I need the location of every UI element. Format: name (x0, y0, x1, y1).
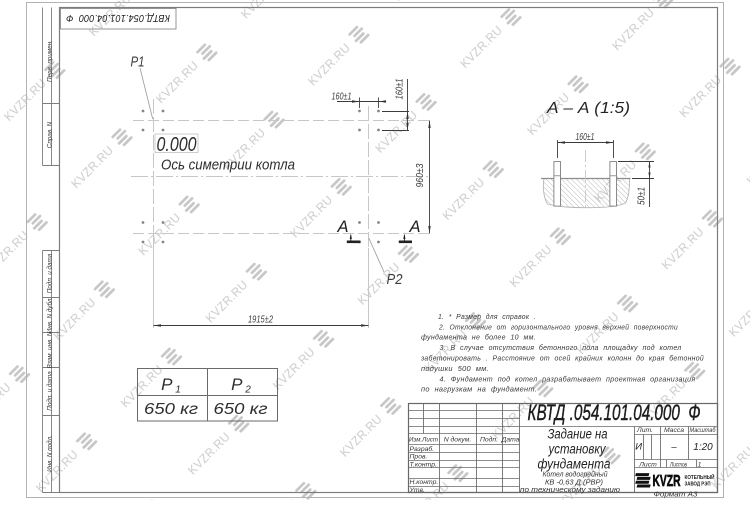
svg-text:Лит.: Лит. (636, 427, 653, 434)
svg-text:Р1: Р1 (131, 54, 145, 71)
svg-text:1:20: 1:20 (693, 442, 713, 453)
svg-text:А – А (1:5): А – А (1:5) (546, 100, 630, 117)
svg-text:Подп. и дата: Подп. и дата (45, 371, 53, 411)
svg-text:2. Отклонение от горизонтал: 2. Отклонение от горизонтального уровня … (438, 322, 678, 331)
svg-text:КОТЕЛЬНЫЙ: КОТЕЛЬНЫЙ (685, 473, 715, 481)
svg-text:А: А (408, 218, 420, 236)
svg-text:Разраб.: Разраб. (410, 445, 435, 453)
svg-text:И: И (635, 442, 642, 453)
svg-text:Инв. N дубл.: Инв. N дубл. (45, 297, 53, 333)
svg-text:А: А (336, 218, 348, 236)
svg-text:Лист: Лист (638, 462, 657, 469)
svg-text:KVZR: KVZR (653, 473, 681, 490)
svg-text:0.000: 0.000 (157, 134, 197, 156)
svg-text:Задание на: Задание на (548, 427, 608, 442)
svg-text:–: – (670, 442, 677, 453)
svg-text:подушки 500 мм.: подушки 500 мм. (421, 364, 489, 373)
svg-text:3. В случае отсутствия бет: 3. В случае отсутствия бетонного пола пл… (440, 343, 682, 352)
svg-text:Подп.: Подп. (480, 436, 498, 444)
svg-text:4. Фундамент под котел раз: 4. Фундамент под котел разрабатывает про… (440, 374, 696, 383)
svg-text:Листов: Листов (669, 462, 687, 469)
svg-text:160±1: 160±1 (576, 132, 595, 143)
svg-text:Формат А3: Формат А3 (654, 490, 698, 499)
svg-text:Справ. N: Справ. N (46, 121, 53, 148)
svg-text:ЗАВОД РЭП: ЗАВОД РЭП (685, 482, 711, 488)
svg-text:Взам. инв. N: Взам. инв. N (46, 331, 53, 368)
svg-text:650 кг: 650 кг (214, 401, 268, 418)
svg-text:Р2: Р2 (387, 271, 404, 288)
svg-text:Утв.: Утв. (409, 487, 426, 494)
svg-text:Н.контр.: Н.контр. (410, 479, 439, 486)
svg-text:1. * Размер для справок .: 1. * Размер для справок . (438, 312, 536, 321)
svg-text:Т.контр.: Т.контр. (410, 461, 438, 468)
svg-text:N докум.: N докум. (444, 436, 472, 444)
svg-text:1: 1 (698, 462, 702, 469)
svg-text:фундамента не более 10 мм.: фундамента не более 10 мм. (421, 333, 536, 342)
svg-text:Изм.Лист: Изм.Лист (409, 437, 438, 444)
svg-text:50±1: 50±1 (637, 187, 648, 205)
svg-text:КВТД.054.101.04.000 Ф: КВТД.054.101.04.000 Ф (66, 12, 170, 24)
svg-text:КВТД .054.101.04.000 Ф: КВТД .054.101.04.000 Ф (528, 400, 701, 425)
svg-text:Масштаб: Масштаб (690, 426, 717, 434)
svg-text:1915±2: 1915±2 (248, 314, 273, 325)
svg-text:160±1: 160±1 (332, 92, 352, 103)
svg-text:960±3: 960±3 (415, 163, 426, 187)
svg-text:Инв. N подл.: Инв. N подл. (45, 435, 53, 472)
svg-text:Масса: Масса (664, 427, 684, 434)
svg-text:Дата: Дата (501, 437, 520, 444)
svg-text:установку: установку (548, 442, 607, 457)
svg-text:Пров.: Пров. (410, 454, 428, 461)
svg-text:забетонировать . Расстояние: забетонировать . Расстояние от осей край… (420, 354, 704, 363)
svg-text:Перв. примен.: Перв. примен. (46, 40, 53, 82)
svg-text:Подп. и дата: Подп. и дата (45, 253, 53, 293)
svg-text:по техническому заданию: по техническому заданию (520, 485, 620, 494)
svg-text:по нагрузкам на фундамент.: по нагрузкам на фундамент. (421, 385, 537, 394)
svg-text:160±1: 160±1 (395, 79, 406, 100)
svg-text:650 кг: 650 кг (144, 401, 198, 418)
svg-text:Ось симетрии котла: Ось симетрии котла (161, 158, 295, 174)
